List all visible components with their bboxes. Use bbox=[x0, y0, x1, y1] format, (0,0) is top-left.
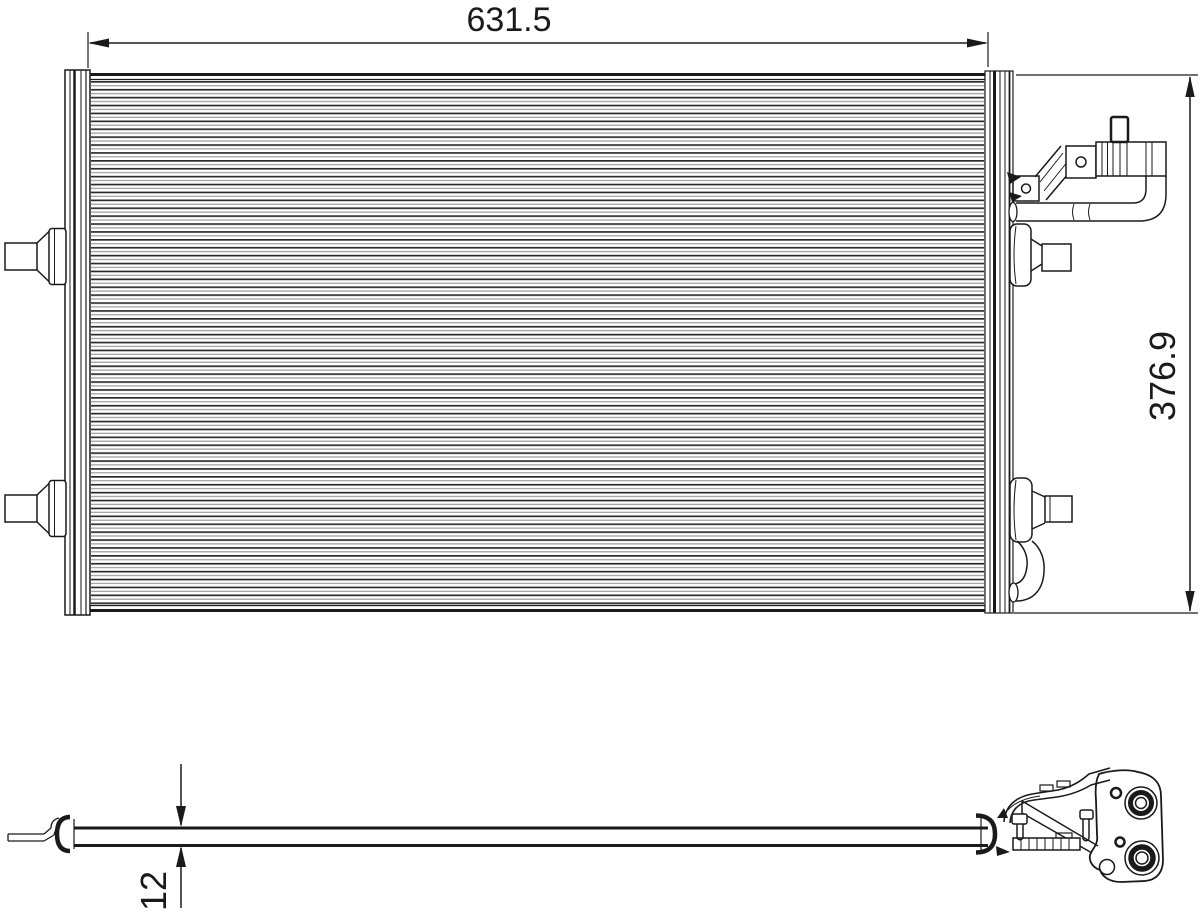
condenser-technical-drawing: 631.5 376.9 bbox=[0, 0, 1200, 913]
width-dimension-label: 631.5 bbox=[466, 1, 551, 39]
arrowhead-up-icon bbox=[176, 846, 186, 867]
mounting-bracket-top-right bbox=[1007, 146, 1074, 202]
arrowhead-up-icon bbox=[1185, 76, 1194, 97]
pipe-stub-lower-left bbox=[5, 481, 66, 537]
width-dimension: 631.5 bbox=[88, 1, 988, 68]
fitting-assembly bbox=[1004, 768, 1163, 882]
technical-drawing-page: 631.5 376.9 bbox=[0, 0, 1200, 913]
arrowhead-right-icon bbox=[967, 39, 988, 48]
port-boss-lower-right bbox=[1010, 478, 1072, 542]
front-view bbox=[5, 70, 1166, 615]
stud-left bbox=[1012, 814, 1027, 840]
connection-block bbox=[1066, 117, 1166, 178]
height-dimension-label: 376.9 bbox=[1142, 331, 1183, 421]
service-port-stub bbox=[1111, 117, 1128, 142]
condenser-core bbox=[90, 72, 985, 613]
left-side-plate bbox=[65, 70, 90, 615]
port-boss-upper-right bbox=[1010, 224, 1071, 286]
arrowhead-down-icon bbox=[1185, 591, 1194, 612]
elbow-pipe-lower-right bbox=[1009, 541, 1044, 602]
core-profile bbox=[74, 828, 988, 846]
tank-end-cap-left bbox=[57, 817, 74, 851]
thickness-dimension-label: 12 bbox=[133, 871, 174, 911]
pipe-stub-upper-left bbox=[5, 229, 66, 285]
thickness-dimension: 12 bbox=[133, 764, 186, 911]
right-tank bbox=[985, 71, 1013, 613]
arrowhead-left-icon bbox=[88, 39, 109, 48]
arrowhead-down-icon bbox=[176, 806, 186, 827]
mounting-tab-left bbox=[8, 818, 60, 841]
